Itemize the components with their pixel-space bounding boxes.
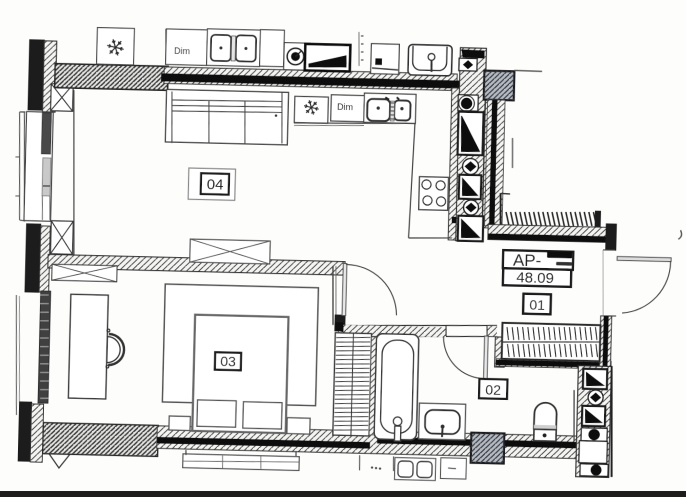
svg-text:Dim: Dim xyxy=(174,46,190,56)
svg-text:02: 02 xyxy=(485,381,501,397)
svg-text:48.09: 48.09 xyxy=(516,269,554,287)
svg-text:03: 03 xyxy=(220,353,236,369)
svg-text:01: 01 xyxy=(529,296,545,312)
svg-text:04: 04 xyxy=(207,176,224,193)
svg-text:Dim: Dim xyxy=(337,102,353,112)
